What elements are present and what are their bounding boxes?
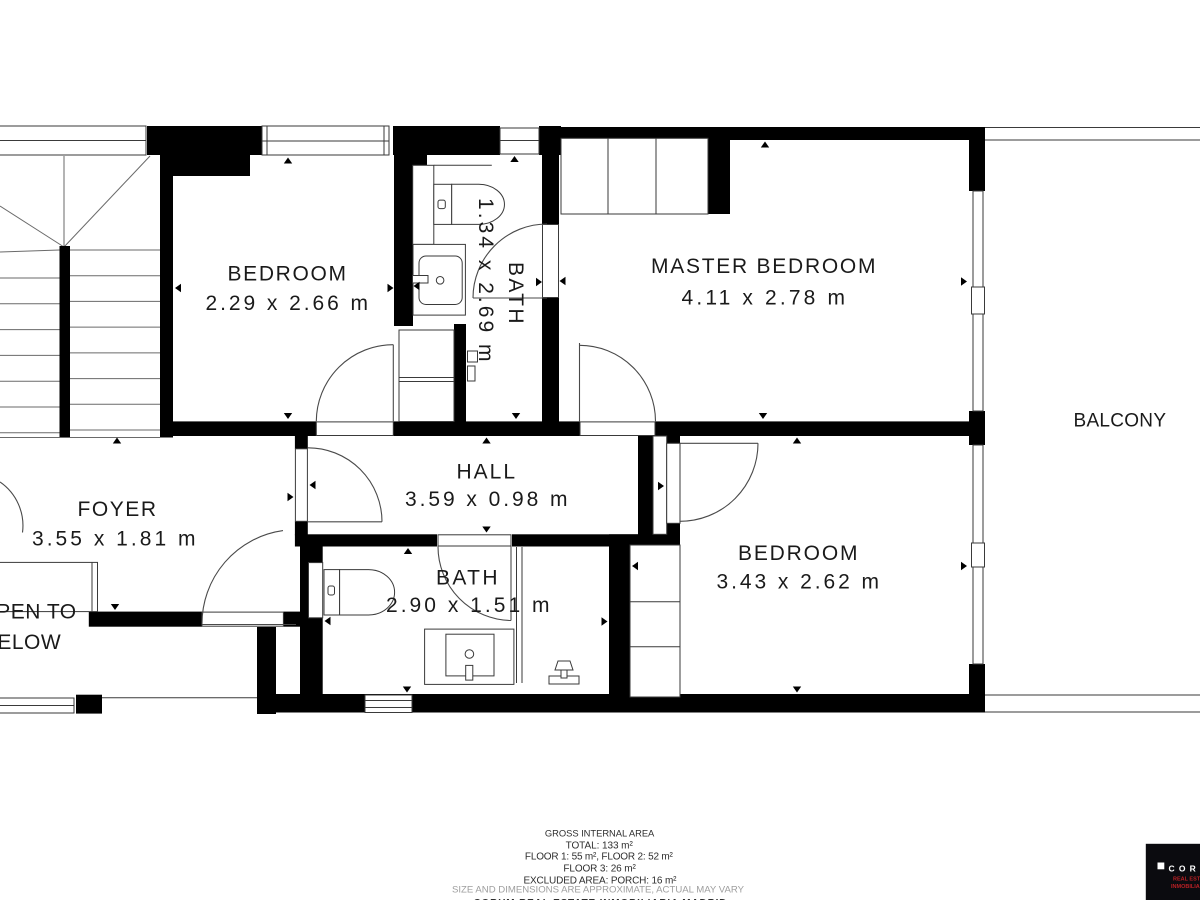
- svg-text:BEDROOM: BEDROOM: [738, 542, 858, 565]
- svg-text:GROSS INTERNAL AREA: GROSS INTERNAL AREA: [545, 828, 655, 839]
- svg-text:TOTAL: 133 m²: TOTAL: 133 m²: [566, 840, 634, 851]
- svg-text:BALCONY: BALCONY: [1074, 411, 1167, 432]
- svg-text:INMOBILIARIA: INMOBILIARIA: [1171, 884, 1200, 890]
- svg-text:SIZE AND DIMENSIONS ARE APPROX: SIZE AND DIMENSIONS ARE APPROXIMATE, ACT…: [452, 885, 745, 896]
- svg-text:HALL: HALL: [457, 461, 516, 484]
- svg-text:BATH: BATH: [504, 262, 527, 324]
- svg-text:OPEN TO: OPEN TO: [0, 601, 77, 624]
- svg-text:REAL ESTATE: REAL ESTATE: [1173, 877, 1200, 883]
- svg-text:BEDROOM: BEDROOM: [228, 263, 347, 286]
- svg-text:BATH: BATH: [436, 567, 498, 590]
- svg-text:FOYER: FOYER: [78, 498, 157, 521]
- svg-text:FLOOR 3: 26 m²: FLOOR 3: 26 m²: [563, 863, 636, 874]
- svg-text:FLOOR 1: 55 m², FLOOR 2: 52 m²: FLOOR 1: 55 m², FLOOR 2: 52 m²: [525, 852, 674, 863]
- svg-text:COR: COR: [1169, 864, 1200, 874]
- svg-text:BELOW: BELOW: [0, 631, 61, 654]
